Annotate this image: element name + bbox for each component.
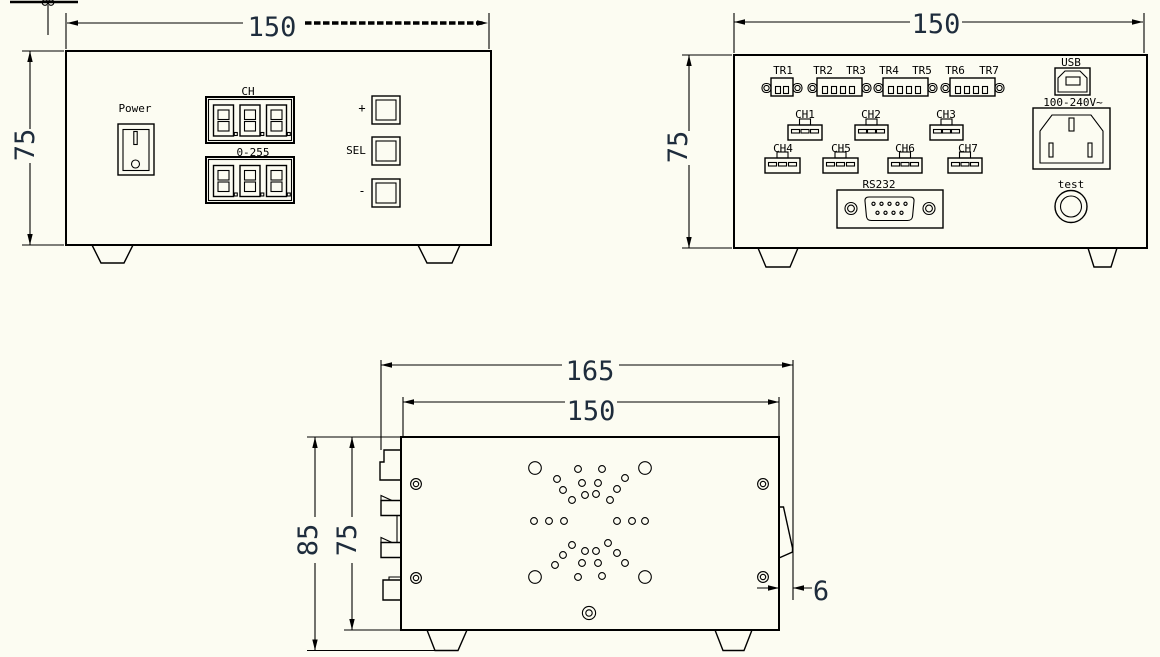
tr-pin xyxy=(850,87,855,94)
tr-pin xyxy=(832,87,837,94)
cad-canvas: 150 75 Power CH 0-255 + xyxy=(0,0,1160,657)
vent-hole xyxy=(614,550,621,557)
back-view-drawing: 150 75 TR1 TR2 TR3 TR4 TR5 TR6 TR7 CH1 C… xyxy=(663,9,1147,267)
vent-hole xyxy=(595,480,602,487)
seg-dp xyxy=(287,193,290,196)
dim-arrow xyxy=(793,585,804,590)
dsub-pin xyxy=(880,202,883,205)
tr-pin xyxy=(784,87,789,94)
power-label: Power xyxy=(118,102,151,115)
dim-arrow xyxy=(312,437,317,448)
tr1-label: TR1 xyxy=(773,64,793,77)
vent-hole xyxy=(582,548,589,555)
front-panel-outline xyxy=(66,51,491,245)
dim-arrow xyxy=(782,362,793,367)
dsub-shell xyxy=(865,197,914,221)
dsub-pin xyxy=(904,202,907,205)
ch-slot xyxy=(868,130,876,134)
side-tab-dim: 6 xyxy=(813,576,829,607)
tr5-label: TR5 xyxy=(912,64,932,77)
dimension-arrows xyxy=(27,19,1143,650)
back-foot-right xyxy=(1088,248,1117,267)
front-foot-right xyxy=(418,245,460,263)
ch-slot xyxy=(911,163,919,167)
ch-slot xyxy=(769,163,777,167)
vent-hole xyxy=(546,518,553,525)
plus-button xyxy=(372,96,400,124)
ch-slot xyxy=(952,130,960,134)
ch-slot xyxy=(801,130,809,134)
dsub-pin xyxy=(896,202,899,205)
vent-hole xyxy=(560,487,567,494)
vent-hole xyxy=(599,466,606,473)
vent-hole xyxy=(642,518,649,525)
tr-pin xyxy=(974,87,979,94)
dim-arrow xyxy=(686,55,691,66)
mount-ear xyxy=(862,84,871,93)
tr-pin xyxy=(916,87,921,94)
ch-slot xyxy=(847,163,855,167)
test-button xyxy=(1055,191,1087,223)
minus-button xyxy=(372,179,400,207)
ch-slot xyxy=(811,130,819,134)
ch-slot xyxy=(792,130,800,134)
back-foot-left xyxy=(758,248,798,267)
vent-hole xyxy=(605,540,612,547)
tr4-label: TR4 xyxy=(879,64,899,77)
screw xyxy=(411,573,422,584)
seg-dp xyxy=(261,133,264,136)
bottom-view-drawing: 165 150 85 75 6 xyxy=(293,356,829,651)
dsub-pin xyxy=(872,202,875,205)
tr-pin xyxy=(889,87,894,94)
tr-pin xyxy=(823,87,828,94)
ch6-label: CH6 xyxy=(895,142,915,155)
screw xyxy=(758,572,769,583)
bottom-outer-width-dim: 165 xyxy=(566,356,615,387)
bottom-outline xyxy=(401,437,779,630)
tr-pin xyxy=(983,87,988,94)
vent-hole xyxy=(622,560,629,567)
vent-hole xyxy=(582,492,589,499)
ch-connectors xyxy=(765,119,982,173)
rs232-label: RS232 xyxy=(862,178,895,191)
seg-dp xyxy=(261,193,264,196)
dim-arrow xyxy=(27,234,32,245)
case-screws xyxy=(411,479,769,620)
ch-slot xyxy=(943,130,951,134)
ch-slot xyxy=(892,163,900,167)
tr-terminal-blocks xyxy=(762,78,1004,96)
ac-power-inlet xyxy=(1033,108,1110,169)
dsub-pin xyxy=(888,202,891,205)
bottom-body-width-dim: 150 xyxy=(567,396,616,427)
plus-button-label: + xyxy=(358,101,365,115)
mount-ear xyxy=(941,84,950,93)
bottom-foot-right xyxy=(715,630,752,651)
vent-hole xyxy=(614,518,621,525)
mount-ear xyxy=(793,84,802,93)
dim-arrow xyxy=(381,362,392,367)
dsub-pin xyxy=(892,211,895,214)
dim-arrow xyxy=(312,640,317,651)
dsub-pin xyxy=(884,211,887,214)
vent-hole xyxy=(554,476,561,483)
vent-hole xyxy=(579,560,586,567)
ch4-label: CH4 xyxy=(773,142,793,155)
ch-slot xyxy=(934,130,942,134)
tr7-label: TR7 xyxy=(979,64,999,77)
front-foot-left xyxy=(92,245,133,263)
sel-button-label: SEL xyxy=(346,144,366,157)
dim-arrow xyxy=(768,399,779,404)
vent-hole xyxy=(569,497,576,504)
ch-slot xyxy=(789,163,797,167)
tr-pin xyxy=(841,87,846,94)
tr-pin xyxy=(776,87,781,94)
side-flap xyxy=(779,507,793,558)
vent-hole xyxy=(531,518,538,525)
tr-block xyxy=(771,78,793,96)
vent-hole-large xyxy=(529,462,542,475)
vent-hole xyxy=(561,518,568,525)
ch-slot xyxy=(827,163,835,167)
ch-slot xyxy=(971,163,979,167)
dim-arrow xyxy=(734,19,745,24)
dim-arrow xyxy=(349,437,354,448)
vent-hole xyxy=(575,574,582,581)
mount-ear xyxy=(995,84,1004,93)
mount-ear xyxy=(762,84,771,93)
tr-pin xyxy=(898,87,903,94)
mount-ear xyxy=(808,84,817,93)
side-tab-mid1 xyxy=(381,501,401,516)
mount-ear xyxy=(928,84,937,93)
fan-vent-holes xyxy=(529,462,652,584)
front-width-dim: 150 xyxy=(248,12,297,43)
tr-pin xyxy=(965,87,970,94)
switch-off-mark xyxy=(132,160,140,168)
vent-hole xyxy=(599,573,606,580)
cad-drawing-page: 150 75 Power CH 0-255 + xyxy=(0,0,1160,657)
side-tab-top xyxy=(380,450,401,480)
vent-hole xyxy=(552,562,559,569)
ch7-label: CH7 xyxy=(958,142,978,155)
dim-arrow xyxy=(349,619,354,630)
ch5-label: CH5 xyxy=(831,142,851,155)
test-label: test xyxy=(1058,178,1085,191)
back-height-dim: 75 xyxy=(663,131,694,164)
mount-ear xyxy=(874,84,883,93)
dim-arrow xyxy=(477,20,488,25)
usb-label: USB xyxy=(1061,56,1081,69)
tr-pin xyxy=(956,87,961,94)
front-view-drawing: 150 75 Power CH 0-255 + xyxy=(10,12,491,263)
bottom-foot-left xyxy=(427,630,467,651)
ch-slot xyxy=(952,163,960,167)
vent-hole xyxy=(607,497,614,504)
ch-slot xyxy=(859,130,867,134)
rs232-port xyxy=(837,190,943,228)
dim-arrow xyxy=(27,51,32,62)
dsub-pin xyxy=(900,211,903,214)
vent-hole xyxy=(595,560,602,567)
vent-hole xyxy=(579,480,586,487)
back-width-dim: 150 xyxy=(912,9,961,40)
tr6-label: TR6 xyxy=(945,64,965,77)
switch-on-mark xyxy=(134,132,137,145)
seg-dp xyxy=(234,193,237,196)
bottom-body-height-dim: 75 xyxy=(332,524,363,557)
sel-button xyxy=(372,137,400,165)
dim-arrow xyxy=(768,585,779,590)
dim-arrow xyxy=(686,237,691,248)
usb-port xyxy=(1055,68,1090,95)
vent-hole xyxy=(560,552,567,559)
ch-slot xyxy=(961,163,969,167)
vent-hole xyxy=(569,542,576,549)
tr-pin xyxy=(907,87,912,94)
seg-dp xyxy=(234,133,237,136)
minus-button-label: - xyxy=(358,184,365,198)
vent-hole xyxy=(593,491,600,498)
vent-hole xyxy=(575,466,582,473)
screw xyxy=(758,479,769,490)
screw xyxy=(411,479,422,490)
dim-arrow xyxy=(67,20,78,25)
side-tab-bottom xyxy=(383,580,400,600)
tr2-label: TR2 xyxy=(813,64,833,77)
clipped-annotation-artifact xyxy=(10,0,78,35)
bottom-outer-height-dim: 85 xyxy=(293,524,324,557)
dim-arrow xyxy=(1132,19,1143,24)
seg-dp xyxy=(287,133,290,136)
vent-hole-large xyxy=(639,462,652,475)
vent-hole xyxy=(629,518,636,525)
dim-arrow xyxy=(403,399,414,404)
tr3-label: TR3 xyxy=(846,64,866,77)
rs232-pins xyxy=(872,202,907,214)
power-switch xyxy=(118,124,154,175)
ch-slot xyxy=(779,163,787,167)
vent-hole-large xyxy=(529,571,542,584)
vent-hole-large xyxy=(639,571,652,584)
ch-slot xyxy=(877,130,885,134)
vent-hole xyxy=(593,548,600,555)
front-height-dim: 75 xyxy=(10,129,41,162)
vent-hole xyxy=(614,486,621,493)
ch-slot xyxy=(901,163,909,167)
dsub-pin xyxy=(876,211,879,214)
ch-slot xyxy=(837,163,845,167)
side-tab-mid2 xyxy=(381,543,401,558)
ac-input-label: 100-240V~ xyxy=(1043,96,1103,109)
vent-hole xyxy=(622,475,629,482)
screw-center xyxy=(582,606,595,619)
